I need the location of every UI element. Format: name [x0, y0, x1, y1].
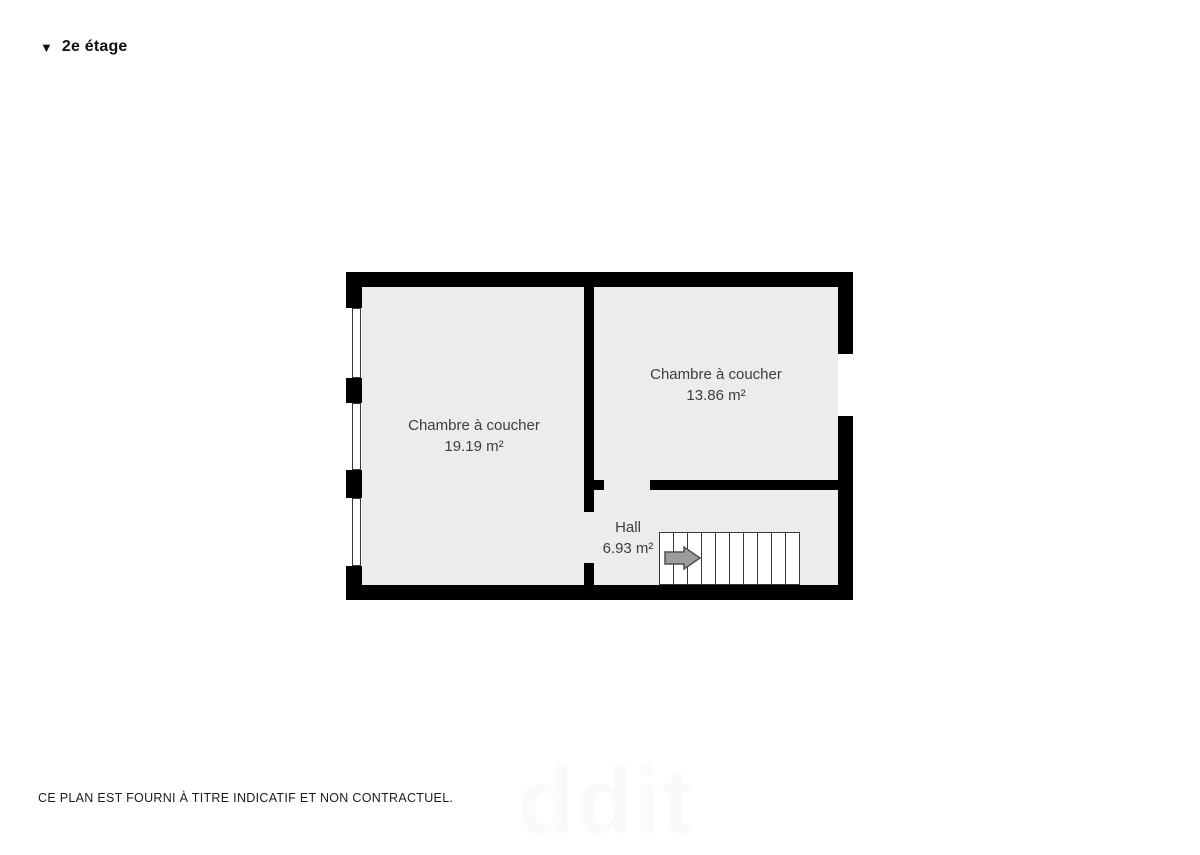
wall-interior-vertical-lower — [584, 563, 594, 585]
triangle-down-icon: ▼ — [40, 41, 53, 54]
wall-right-lower — [838, 416, 853, 600]
stair-tread — [716, 533, 730, 584]
room-label-bedroom-left: Chambre à coucher 19.19 m² — [408, 415, 540, 457]
wall-interior-stub — [594, 480, 604, 490]
wall-interior-horizontal — [650, 480, 838, 490]
floorplan-page: ▼ 2e étage Chambre à coucher 19.19 m² Ch… — [0, 0, 1200, 848]
wall-left-corner-bottom — [346, 566, 362, 600]
room-name: Chambre à coucher — [650, 364, 782, 385]
stair-tread — [744, 533, 758, 584]
window-left-1 — [352, 308, 361, 378]
stair-tread — [730, 533, 744, 584]
wall-interior-vertical — [584, 287, 594, 512]
stair-tread — [702, 533, 716, 584]
floor-section-header[interactable]: ▼ 2e étage — [40, 38, 128, 56]
stair-arrow-shape — [665, 547, 700, 569]
room-label-bedroom-right: Chambre à coucher 13.86 m² — [650, 364, 782, 406]
stair-tread — [786, 533, 799, 584]
wall-top — [346, 272, 853, 287]
room-area: 19.19 m² — [408, 436, 540, 457]
stair-tread — [758, 533, 772, 584]
stair-tread — [772, 533, 786, 584]
disclaimer-text: CE PLAN EST FOURNI À TITRE INDICATIF ET … — [38, 791, 453, 805]
wall-left-pier-1 — [346, 378, 362, 403]
window-left-3 — [352, 498, 361, 566]
room-name: Hall — [603, 517, 654, 538]
room-area: 6.93 m² — [603, 538, 654, 559]
window-left-2 — [352, 403, 361, 470]
wall-right-upper — [838, 272, 853, 354]
room-area: 13.86 m² — [650, 385, 782, 406]
floor-title: 2e étage — [62, 38, 128, 56]
room-label-hall: Hall 6.93 m² — [603, 517, 654, 559]
room-name: Chambre à coucher — [408, 415, 540, 436]
wall-left-pier-2 — [346, 470, 362, 498]
wall-left-corner-top — [346, 272, 362, 308]
wall-bottom — [346, 585, 853, 600]
watermark: ddit — [518, 750, 695, 855]
stair-direction-arrow-icon — [663, 544, 703, 572]
